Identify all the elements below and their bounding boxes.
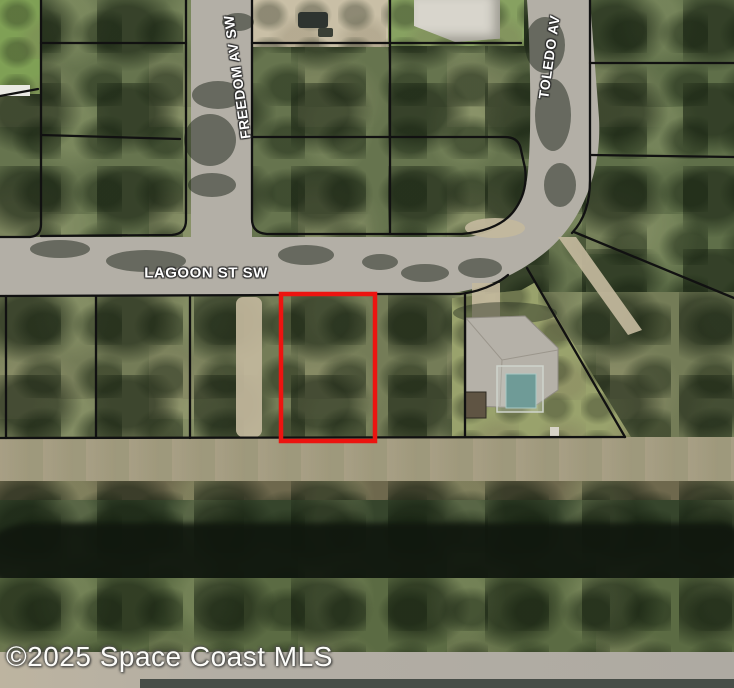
equipment-blob	[318, 28, 333, 37]
aerial-map-canvas: FREEDOM AV SW TOLEDO AV LAGOON ST SW ©20…	[0, 0, 734, 688]
street-label-lagoon-st-sw: LAGOON ST SW	[144, 265, 268, 282]
pool	[506, 374, 536, 408]
equipment-blob	[298, 12, 328, 28]
subject-parcel-outline	[281, 294, 375, 441]
dirt-path-vertical	[236, 297, 262, 437]
parcel-overlay	[0, 0, 734, 688]
dirt-patch-corner	[465, 218, 525, 238]
house-southeast	[453, 302, 559, 438]
parcel-boundary-lines	[0, 0, 734, 438]
dirt-trail-diagonal	[558, 237, 642, 335]
mls-copyright-watermark: ©2025 Space Coast MLS	[6, 641, 333, 673]
shed	[465, 392, 486, 418]
